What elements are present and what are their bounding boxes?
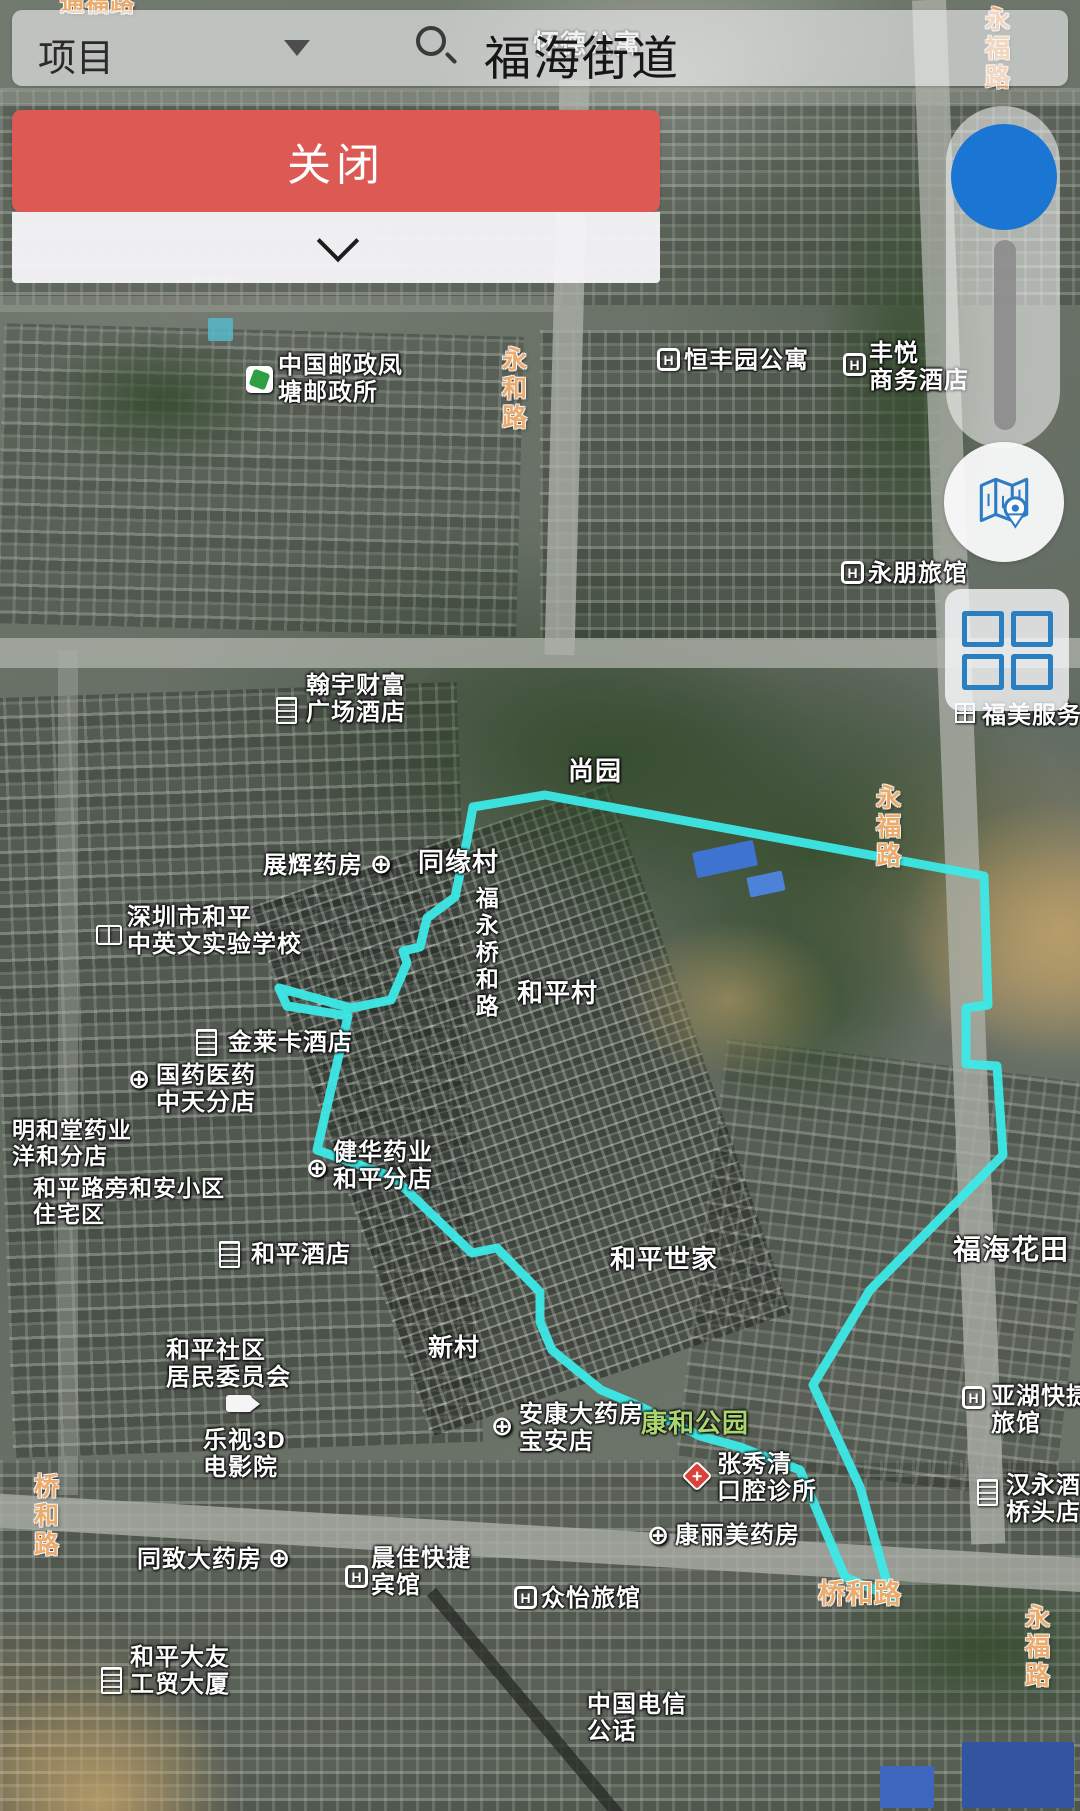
xincun: 新村 (428, 1334, 480, 1363)
kanghe-park: 康和公园 (641, 1409, 749, 1439)
cross-icon: ⊕ (126, 1066, 152, 1092)
camera-icon (226, 1395, 252, 1412)
road-yongfu-mid: 永福路 (872, 784, 901, 871)
close-button[interactable]: 关闭 (12, 110, 660, 212)
layers-grid-icon (1011, 654, 1053, 690)
book-icon (96, 925, 122, 945)
hanyong-hotel: 汉永酒店桥头店 (1006, 1472, 1080, 1527)
building-icon (219, 1241, 240, 1268)
yongpeng-hotel: 永朋旅馆 (868, 560, 968, 587)
heping-school: 深圳市和平中英文实验学校 (127, 904, 302, 959)
road-qiaohe: 桥和路 (818, 1579, 902, 1610)
hanyu-fortune-hotel: 翰宇财富广场酒店 (306, 672, 406, 727)
layers-grid-button[interactable] (945, 589, 1069, 711)
hotel-icon: H (962, 1386, 985, 1409)
search-icon (416, 26, 446, 56)
zoom-slider-rail (994, 240, 1016, 430)
hotel-icon: H (841, 561, 864, 584)
map-with-pin-icon (971, 469, 1037, 535)
road-yonghe: 永和路 (498, 346, 527, 433)
cross-icon: ⊕ (304, 1155, 330, 1181)
building-icon (977, 1479, 998, 1506)
hotel-icon: H (345, 1565, 368, 1588)
map-style-button[interactable] (944, 442, 1064, 562)
fuhai-huatian: 福海花田 (953, 1234, 1069, 1266)
tongzhi-pharmacy: 同致大药房 (137, 1546, 262, 1573)
search-input-value[interactable]: 福海街道 (484, 20, 680, 89)
cross-icon: ⊕ (368, 851, 394, 877)
redcross-icon: + (681, 1460, 712, 1491)
cross-icon: ⊕ (645, 1522, 671, 1548)
map-app-screen: 怀德公寓通福路永福路中国邮政凤塘邮政所永和路恒丰园公寓H丰悦商务酒店H永朋旅馆H… (0, 0, 1080, 1811)
road-qiaohe-left: 桥和路 (30, 1473, 59, 1560)
shangyuan: 尚园 (568, 757, 622, 787)
ankang-pharmacy: 安康大药房宝安店 (519, 1401, 644, 1456)
dental-clinic: 张秀清口腔诊所 (717, 1451, 817, 1506)
hean-residence: 和平路旁和安小区住宅区 (33, 1175, 225, 1227)
hepingdayou-tower: 和平大友工贸大厦 (130, 1644, 230, 1699)
hotel-icon: H (843, 353, 866, 376)
project-dropdown-label[interactable]: 项目 (38, 27, 114, 82)
building-icon (196, 1029, 217, 1056)
heping-committee: 和平社区居民委员会 (166, 1337, 291, 1392)
cross-icon: ⊕ (266, 1545, 292, 1571)
tongyuan-village: 同缘村 (418, 848, 499, 878)
layers-grid-icon (962, 611, 1004, 647)
jianhua-pharma: 健华药业和平分店 (333, 1139, 433, 1194)
zhanhui-pharmacy: 展辉药房 (263, 852, 363, 879)
layers-grid-icon (1011, 611, 1053, 647)
road-fuyong-qiaohe: 福永桥和路 (472, 886, 498, 1021)
post-icon (246, 366, 273, 393)
china-telecom: 中国电信公话 (587, 1691, 687, 1746)
search-bar[interactable]: 项目 福海街道 (12, 10, 1068, 86)
zoom-slider-knob[interactable] (951, 124, 1057, 230)
hotel-icon: H (657, 348, 680, 371)
collapse-panel[interactable] (12, 212, 660, 283)
dropdown-caret-icon[interactable] (284, 40, 310, 56)
kanglimei-pharmacy: 康丽美药房 (675, 1522, 800, 1549)
building-icon (276, 697, 297, 724)
heping-hotel: 和平酒店 (251, 1241, 351, 1268)
road-yongfu-bottom: 永福路 (1021, 1604, 1050, 1691)
hotel-icon: H (514, 1586, 537, 1609)
layers-grid-icon (962, 654, 1004, 690)
close-button-label: 关闭 (287, 129, 385, 193)
chevron-down-icon[interactable] (317, 220, 359, 262)
guoyao-pharma: 国药医药中天分店 (156, 1062, 256, 1117)
yahu-express-hotel: 亚湖快捷旅馆 (991, 1383, 1080, 1438)
hengfengyuan-apartments: 恒丰园公寓 (684, 347, 809, 374)
minghetang-pharma: 明和堂药业洋和分店 (12, 1117, 132, 1169)
cross-icon: ⊕ (489, 1413, 515, 1439)
building-icon (101, 1667, 122, 1694)
heping-shijia: 和平世家 (610, 1245, 718, 1275)
jinlaika-hotel: 金莱卡酒店 (228, 1029, 353, 1056)
chenjia-express-hotel: 晨佳快捷宾馆 (371, 1545, 471, 1600)
post-office: 中国邮政凤塘邮政所 (278, 352, 403, 407)
heping-village: 和平村 (517, 979, 598, 1009)
zhongyi-hotel: 众怡旅馆 (541, 1585, 641, 1612)
leshi-3d-cinema: 乐视3D电影院 (203, 1427, 286, 1482)
